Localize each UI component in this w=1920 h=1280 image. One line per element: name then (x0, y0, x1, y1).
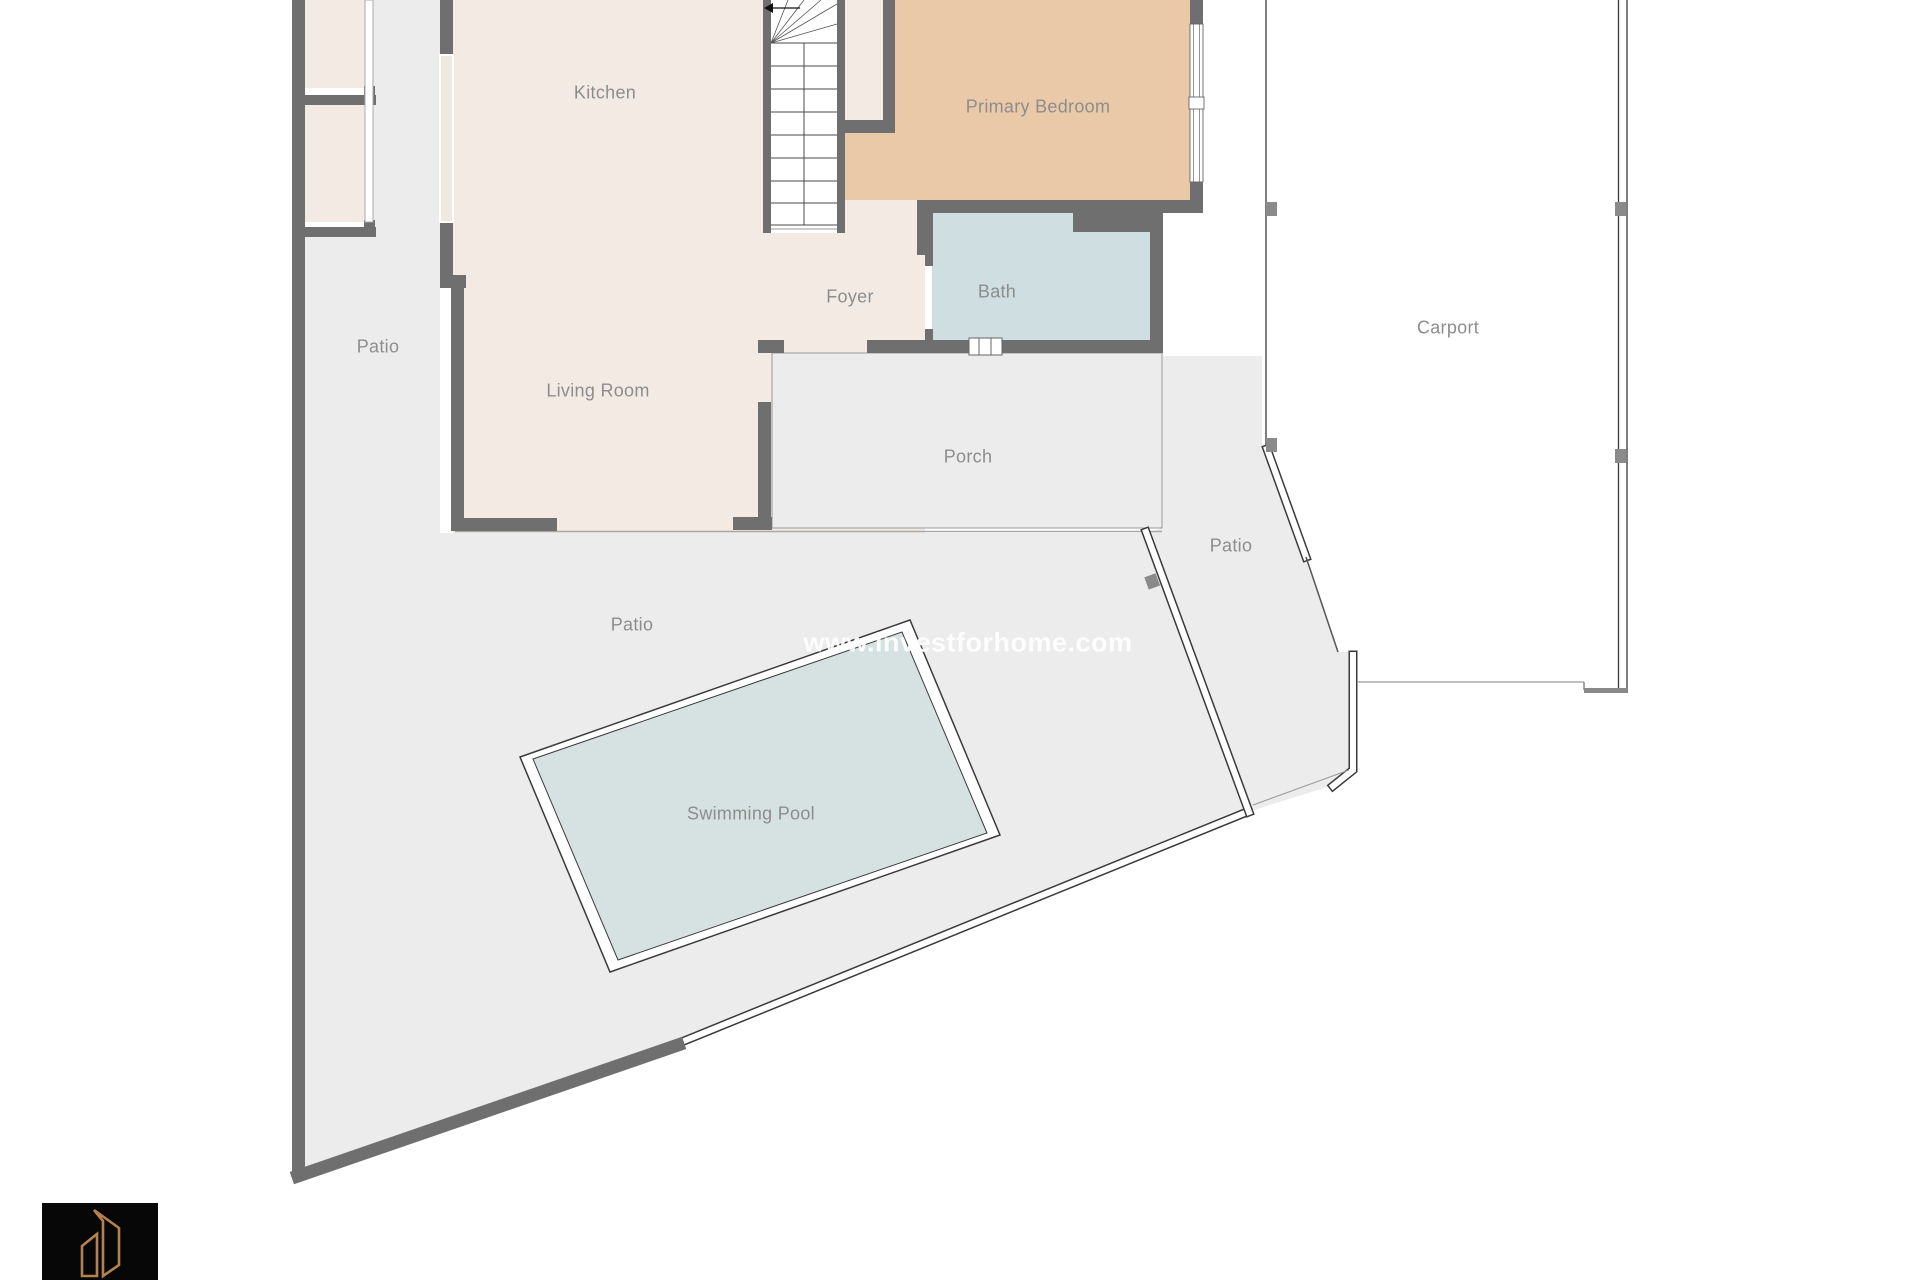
carport-post (1266, 202, 1277, 216)
watermark: www.investforhome.com (803, 628, 1132, 659)
room-label-carport: Carport (1417, 318, 1479, 339)
staircase (764, 0, 837, 233)
room-label-patio-left: Patio (357, 337, 400, 358)
room-label-patio-right: Patio (1210, 536, 1253, 557)
window-bath-south (969, 338, 1002, 355)
room-label-bath: Bath (978, 282, 1016, 303)
room-label-kitchen: Kitchen (574, 83, 636, 104)
logo-building-icon (42, 1203, 158, 1280)
carport-post (1266, 438, 1277, 452)
carport-post (1615, 449, 1626, 463)
room-label-living-room: Living Room (546, 381, 649, 402)
room-label-primary-bedroom: Primary Bedroom (966, 97, 1111, 118)
carport-post (1615, 202, 1626, 216)
room-label-patio-center: Patio (611, 615, 654, 636)
floor-plan-page: { "rooms": { "kitchen": {"label": "Kitch… (0, 0, 1920, 1280)
room-label-porch: Porch (944, 447, 993, 468)
window-kitchen-west (440, 55, 453, 222)
room-label-foyer: Foyer (826, 287, 874, 308)
brand-logo (42, 1203, 158, 1280)
room-label-swimming-pool: Swimming Pool (687, 804, 815, 825)
window-bedroom-east (1189, 24, 1204, 182)
window-glass-wall (365, 0, 373, 222)
